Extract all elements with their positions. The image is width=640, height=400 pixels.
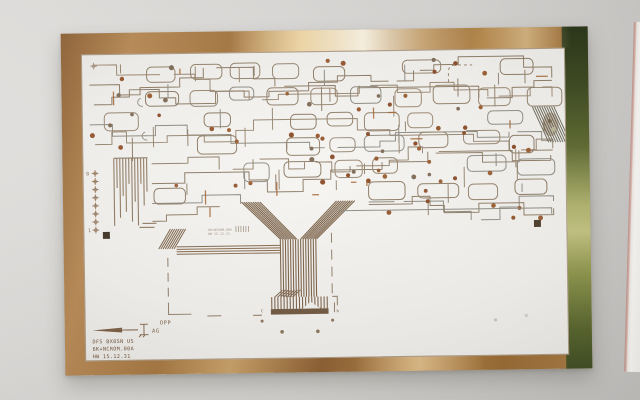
- oxide-dot: [525, 314, 528, 317]
- fiducial-square-right: [534, 220, 541, 227]
- key-cell-outline: [488, 110, 523, 124]
- photo-wall-scene: C 7 b 6K+NCROM.00A HW 15.12.31 OPP: [0, 0, 640, 400]
- solder-pad: [285, 92, 289, 96]
- circuit-trace: [89, 63, 552, 103]
- stamp-line-2: HW 15.12.31: [208, 232, 230, 236]
- tail-trunk: [288, 239, 289, 297]
- solder-pad: [413, 141, 417, 145]
- solder-pad: [381, 149, 385, 153]
- key-cell-outline: [350, 86, 381, 103]
- tail-bus: [177, 250, 280, 251]
- circuit-trace: [152, 194, 563, 221]
- solder-pad: [341, 61, 346, 66]
- solder-pad: [169, 65, 174, 70]
- solder-pad: [383, 174, 388, 179]
- legend-direction-label: AG: [152, 329, 160, 335]
- solder-pad: [120, 77, 124, 81]
- tail-trunk: [303, 239, 304, 297]
- legend-block: AG DFS BX0SN US 6K+NCROM.00A HW 15.12.31: [92, 324, 160, 360]
- tail-branch-left: [251, 202, 289, 240]
- key-cell-outline: [204, 113, 231, 127]
- key-cell-outline: [433, 85, 470, 104]
- legend-line-1: DFS BX0SN US: [92, 339, 134, 346]
- key-cell-outline: [230, 63, 260, 79]
- tail-trunk: [298, 239, 299, 297]
- copper-glint: [355, 356, 485, 372]
- key-cell-outline: [468, 184, 497, 200]
- legend-line-3: HW 15.12.31: [93, 354, 131, 361]
- tail-trunk: [306, 239, 307, 297]
- solder-pad: [453, 176, 457, 180]
- tail-trunk: [311, 239, 312, 297]
- solder-pad: [289, 132, 294, 137]
- circuit-trace: [95, 116, 563, 156]
- tail-branch-right: [308, 201, 346, 239]
- registration-top-label: 8: [86, 172, 89, 178]
- solder-pad: [511, 216, 515, 220]
- tail-trunk: [308, 239, 309, 297]
- solder-pad: [426, 199, 430, 203]
- key-cell-outline: [395, 89, 422, 107]
- key-cell-outline: [368, 181, 405, 199]
- tail-trunk: [301, 239, 302, 297]
- circuit-trace: [90, 118, 553, 151]
- tail-branch-right: [310, 201, 348, 239]
- circuit-art: C 7 b 6K+NCROM.00A HW 15.12.31 OPP: [82, 49, 568, 361]
- alignment-dot: [331, 319, 334, 322]
- serpentine-traces: [114, 158, 157, 228]
- solder-pad: [411, 175, 416, 180]
- solder-pad: [352, 170, 356, 174]
- key-cell-outline: [311, 88, 338, 105]
- serpentine-block: [114, 158, 157, 228]
- solder-pad: [130, 113, 134, 117]
- generated-traces: [89, 55, 568, 226]
- solder-pad: [403, 94, 407, 98]
- fold-dashed-line-right: [331, 233, 332, 297]
- stamp-ladder: [236, 226, 249, 232]
- solder-pad: [118, 145, 123, 150]
- solder-pad: [428, 173, 432, 177]
- tail-trunk: [293, 239, 294, 297]
- tail-bus: [177, 253, 280, 254]
- tail-bus: [177, 245, 280, 246]
- solder-pad: [163, 98, 168, 103]
- solder-pad: [346, 173, 350, 177]
- solder-pad: [387, 210, 392, 215]
- key-cell-outline: [364, 135, 404, 151]
- solder-pad: [108, 123, 112, 127]
- solder-pad: [174, 184, 178, 188]
- solder-pad: [330, 155, 335, 160]
- tail-trunk: [296, 239, 297, 297]
- solder-pad: [432, 58, 436, 62]
- key-cell-outline: [290, 114, 316, 129]
- solder-pad: [436, 126, 441, 131]
- solder-pad: [491, 203, 496, 208]
- solder-pad: [90, 133, 95, 138]
- solder-pad: [227, 128, 231, 132]
- solder-pad: [388, 102, 392, 106]
- tail-branch-left: [253, 202, 291, 240]
- leaning-pane-edge: [624, 22, 640, 372]
- solder-pad: [512, 145, 516, 149]
- solder-pad: [456, 107, 460, 111]
- tail-trunk: [285, 239, 286, 297]
- key-cell-outline: [515, 179, 547, 195]
- membrane-circuit-sheet: C 7 b 6K+NCROM.00A HW 15.12.31 OPP: [61, 26, 593, 375]
- key-cell-outline: [527, 87, 562, 106]
- registration-marks: [90, 63, 99, 234]
- solder-pad: [320, 136, 324, 140]
- key-cell-outline: [267, 88, 298, 106]
- arc-marks: [138, 98, 148, 140]
- alignment-dot: [261, 320, 264, 323]
- legend-line-2: 6K+NCROM.00A: [93, 346, 135, 353]
- solder-pad: [439, 179, 443, 183]
- fiducial-square-left: [103, 232, 110, 239]
- tail-trunk: [290, 239, 291, 297]
- fold-corner-left: [169, 310, 192, 314]
- alignment-dot: [316, 329, 320, 333]
- connector-mark-left: C: [261, 308, 264, 313]
- fold-label: OPP: [160, 320, 172, 326]
- solder-pad: [538, 215, 543, 220]
- solder-pad: [424, 189, 428, 193]
- solder-pad: [357, 107, 361, 111]
- tail-trunk: [313, 239, 314, 297]
- key-cell-outline: [286, 138, 319, 156]
- solder-pad: [463, 125, 467, 129]
- key-cell-outline: [500, 58, 533, 74]
- solder-pad: [482, 71, 487, 76]
- tail-branch-right: [306, 201, 344, 239]
- solder-pad: [234, 184, 238, 188]
- tail-trunk: [316, 239, 317, 297]
- solder-pad: [326, 59, 330, 63]
- solder-pad: [377, 94, 381, 98]
- key-cell-outline: [272, 64, 298, 79]
- direction-arrow-icon: [92, 328, 122, 333]
- solder-pad: [147, 93, 152, 98]
- key-cell-outline: [154, 188, 186, 204]
- registration-bottom-label: 1: [88, 228, 91, 234]
- solder-pad: [157, 114, 161, 118]
- tail-bus: [177, 248, 280, 249]
- datum-symbol-icon: [139, 324, 149, 337]
- key-cell-outline: [408, 113, 433, 128]
- tail-trunk: [283, 239, 284, 297]
- solder-pad: [526, 148, 531, 153]
- alignment-dot: [280, 330, 284, 334]
- key-cell-outline: [229, 87, 253, 100]
- fold-hook: [332, 296, 337, 305]
- dashed-corner-mark: [448, 65, 472, 82]
- oxide-dot: [494, 318, 497, 321]
- membrane-substrate: C 7 b 6K+NCROM.00A HW 15.12.31 OPP: [81, 48, 569, 362]
- copper-glint: [481, 27, 571, 49]
- key-cell-outline: [313, 66, 344, 81]
- tail-branch-left: [248, 202, 286, 240]
- tail-trunk: [280, 239, 281, 297]
- fold-dashed-line-left: [168, 258, 169, 311]
- key-cell-outline: [467, 155, 506, 171]
- key-cell-outline: [330, 138, 355, 152]
- membrane-tail: [158, 201, 356, 316]
- solder-pad: [320, 180, 325, 185]
- solder-pad: [307, 102, 312, 107]
- solder-pad: [374, 157, 378, 161]
- connector-mark-far-right: b: [336, 308, 339, 313]
